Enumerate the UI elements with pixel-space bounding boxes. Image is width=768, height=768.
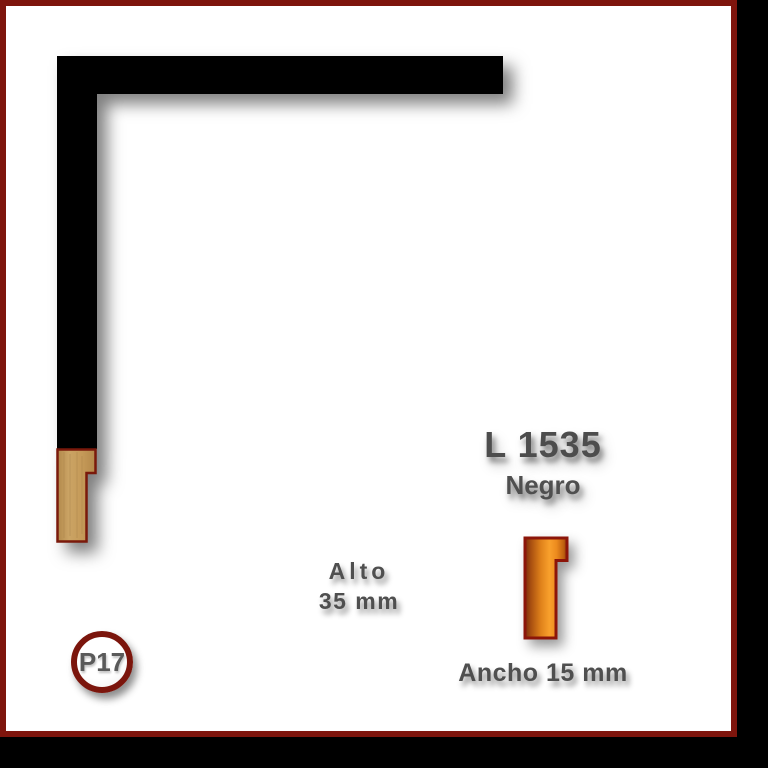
height-value: 35 mm xyxy=(284,588,434,615)
p17-badge: P17 xyxy=(71,631,133,693)
badge-text: P17 xyxy=(79,647,125,678)
product-title-block: L 1535 Negro xyxy=(418,424,668,501)
profile-cross-section xyxy=(523,536,569,640)
product-code: L 1535 xyxy=(418,424,668,466)
height-dimension: Alto 35 mm xyxy=(284,558,434,615)
product-card xyxy=(0,0,737,737)
product-finish: Negro xyxy=(418,470,668,501)
width-label: Ancho 15 mm xyxy=(433,659,653,688)
height-label: Alto xyxy=(284,558,434,585)
